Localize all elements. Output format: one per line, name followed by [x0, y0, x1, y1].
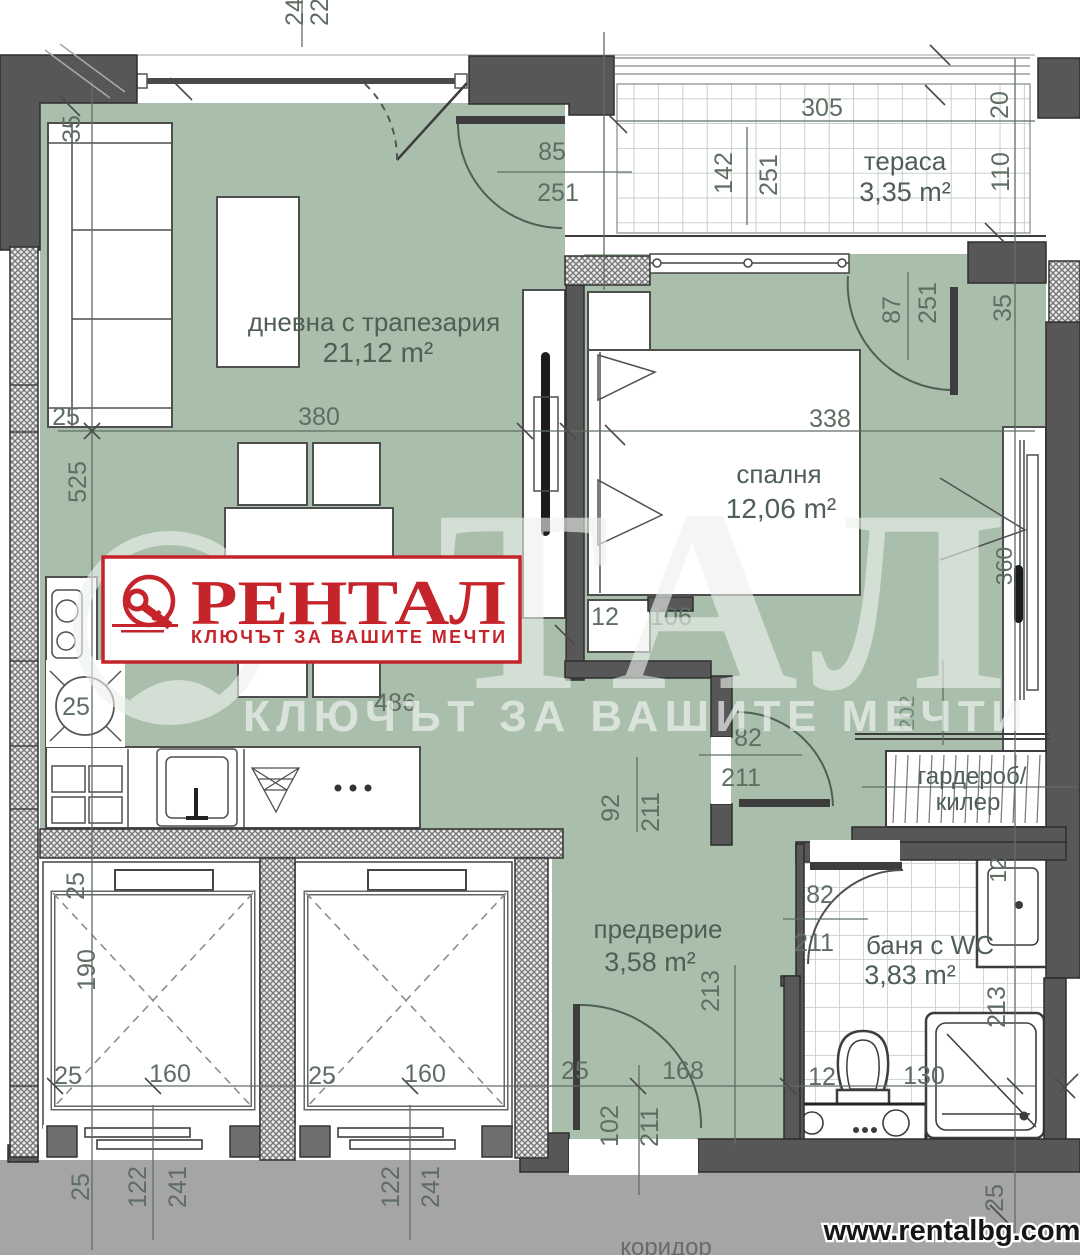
svg-text:211: 211 [794, 929, 834, 957]
svg-text:525: 525 [64, 461, 92, 503]
svg-text:25: 25 [54, 1062, 82, 1090]
svg-text:12: 12 [808, 1063, 836, 1091]
svg-text:85: 85 [538, 138, 566, 166]
svg-text:87: 87 [878, 296, 906, 324]
svg-text:25: 25 [62, 693, 90, 721]
svg-text:338: 338 [809, 405, 851, 433]
svg-text:168: 168 [662, 1057, 704, 1085]
svg-text:251: 251 [755, 154, 783, 196]
svg-text:25: 25 [981, 1184, 1009, 1212]
svg-text:22: 22 [306, 0, 334, 26]
svg-text:211: 211 [721, 764, 761, 792]
svg-text:305: 305 [801, 94, 843, 122]
svg-text:3,58 m²: 3,58 m² [604, 947, 696, 977]
svg-text:211: 211 [637, 792, 665, 832]
svg-text:213: 213 [983, 986, 1011, 1028]
svg-text:142: 142 [710, 152, 738, 194]
svg-text:25: 25 [62, 872, 90, 900]
svg-text:35: 35 [58, 115, 86, 143]
svg-text:92: 92 [597, 794, 625, 822]
svg-text:160: 160 [149, 1060, 191, 1088]
svg-text:тераса: тераса [864, 146, 947, 176]
svg-text:211: 211 [636, 1107, 664, 1147]
svg-text:122: 122 [377, 1166, 405, 1208]
svg-text:12: 12 [985, 857, 1011, 883]
svg-text:35: 35 [989, 294, 1017, 322]
svg-text:251: 251 [914, 282, 942, 324]
svg-text:251: 251 [537, 179, 579, 207]
svg-text:25: 25 [67, 1173, 95, 1201]
svg-text:КЛЮЧЪТ ЗА ВАШИТЕ МЕЧТИ: КЛЮЧЪТ ЗА ВАШИТЕ МЕЧТИ [243, 692, 1029, 741]
svg-text:24: 24 [281, 0, 309, 26]
svg-text:25: 25 [561, 1057, 589, 1085]
svg-text:предверие: предверие [593, 914, 722, 944]
svg-text:213: 213 [697, 970, 725, 1012]
svg-text:килер: килер [936, 789, 1001, 816]
svg-text:3,83 m²: 3,83 m² [864, 960, 956, 990]
svg-text:130: 130 [903, 1062, 945, 1090]
svg-text:102: 102 [596, 1105, 624, 1147]
svg-text:110: 110 [987, 152, 1015, 192]
svg-text:баня с WC: баня с WC [866, 930, 994, 960]
svg-text:241: 241 [164, 1166, 192, 1208]
svg-text:241: 241 [417, 1166, 445, 1208]
svg-text:25: 25 [308, 1062, 336, 1090]
svg-text:коридор: коридор [620, 1234, 712, 1255]
svg-text:190: 190 [73, 949, 101, 991]
svg-text:122: 122 [124, 1166, 152, 1208]
svg-text:380: 380 [298, 403, 340, 431]
svg-text:дневна с трапезария: дневна с трапезария [248, 307, 500, 337]
svg-text:21,12 m²: 21,12 m² [323, 337, 434, 368]
svg-text:гардероб/: гардероб/ [918, 763, 1027, 790]
svg-text:20: 20 [986, 91, 1014, 119]
svg-text:www.rentalbg.com: www.rentalbg.com [823, 1215, 1080, 1247]
svg-text:160: 160 [404, 1060, 446, 1088]
svg-text:82: 82 [806, 881, 834, 909]
svg-text:3,35 m²: 3,35 m² [859, 177, 951, 207]
svg-text:25: 25 [52, 403, 80, 431]
